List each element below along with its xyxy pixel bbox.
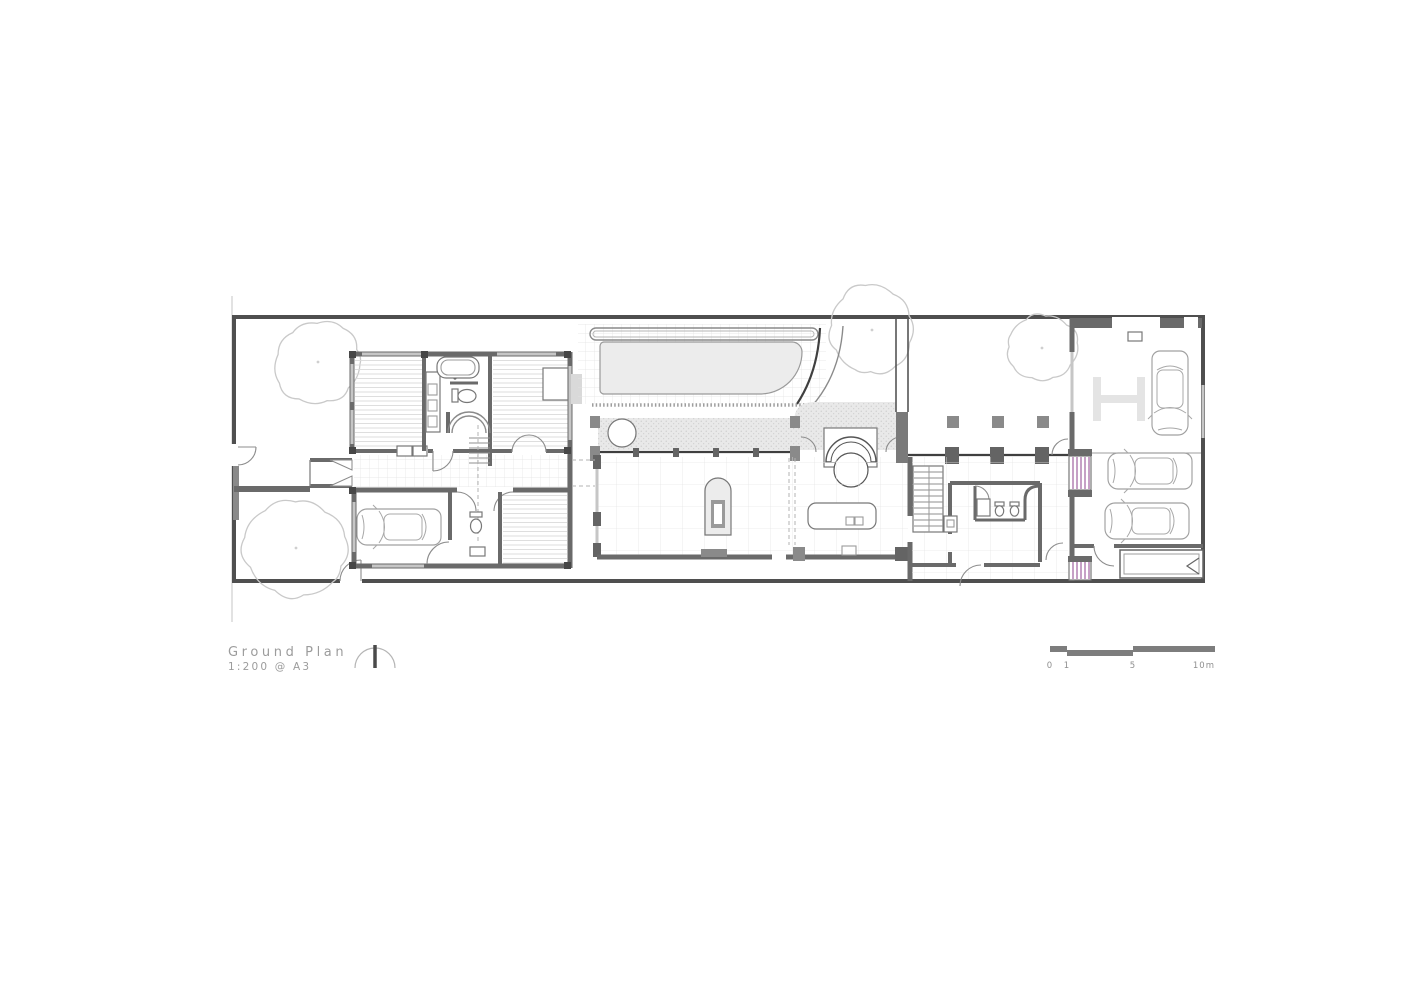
hallway-floor [354,455,568,487]
pool [600,342,802,394]
floor-plan-drawing: Ground Plan 1:200 @ A3 0 1 5 10m [0,0,1415,1000]
scale-bar: 0 1 5 10m [1047,646,1215,671]
service-rooms [912,457,1068,586]
drawing-sheet: Ground Plan 1:200 @ A3 0 1 5 10m [0,0,1415,1000]
purple-stair-lower [1068,556,1092,580]
car-lift-H-marking [1097,377,1141,421]
title-block: Ground Plan 1:200 @ A3 [228,645,347,673]
meter-box [1128,332,1142,341]
purple-stair-upper [1068,449,1092,497]
entry-porch [310,460,352,486]
bedroom-floor [355,357,422,449]
car-horizontal-1 [1108,449,1192,493]
car-horizontal-2 [1105,499,1189,543]
car-in-garage [357,505,441,549]
scale-label-0: 0 [1047,661,1053,671]
drawing-title: Ground Plan [228,645,347,660]
scale-label-5: 5 [1130,661,1136,671]
toilet [452,389,476,403]
courtyard [896,319,1068,464]
kitchen-island [808,503,876,529]
scale-label-1: 1 [1064,661,1070,671]
planter-tree [608,419,636,447]
car-vertical [1148,351,1192,435]
north-arrow [355,645,395,668]
pool-terrace [578,324,843,406]
drawing-scale-note: 1:200 @ A3 [228,661,311,673]
service-stair [913,466,943,532]
rear-room-floor [503,494,567,564]
fireplace-niche [705,478,731,535]
living-area [572,455,910,581]
scale-label-10m: 10m [1193,661,1215,671]
roller-door [1120,550,1203,578]
